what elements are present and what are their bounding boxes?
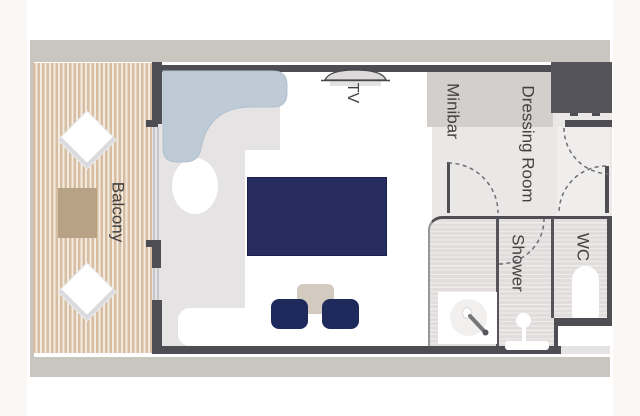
tv-label: TV [344,83,360,103]
floorplan-linework [0,0,640,416]
shower-label: Shower [510,234,527,292]
balcony-label: Balcony [110,182,127,242]
minibar-label: Minibar [445,83,462,139]
entry-door-swing [564,128,610,174]
wc-label: WC [575,233,592,261]
tv-icon [325,70,386,80]
faucet-icon [470,316,484,331]
dressing-door-swing [448,163,498,213]
dressing-room-label: Dressing Room [520,85,537,202]
corner-sofa [163,71,287,162]
stateroom-floor-plan: Balcony TV Minibar Dressing Room Shower … [0,0,640,416]
faucet-tip [483,330,489,336]
